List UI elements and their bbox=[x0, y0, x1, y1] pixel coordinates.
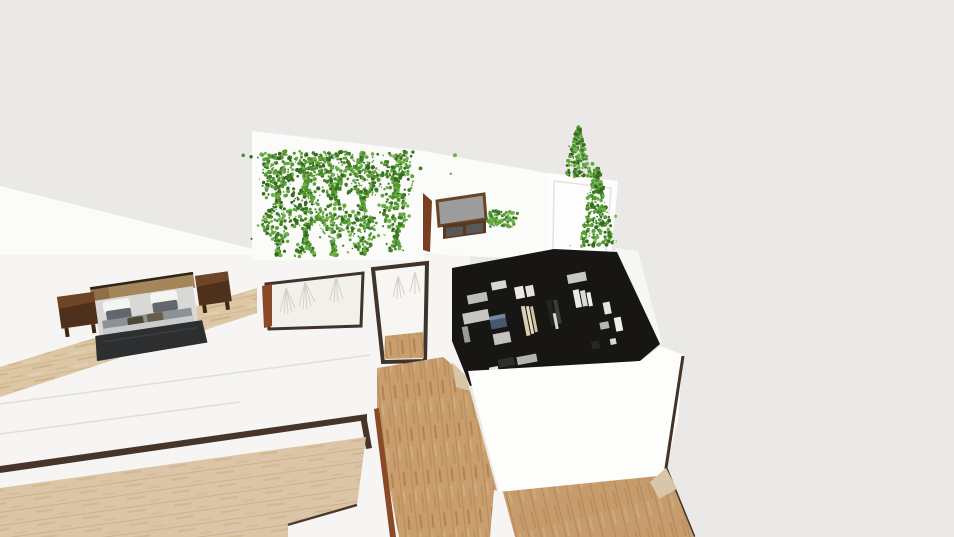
leaf-dot bbox=[369, 215, 371, 217]
leaf-dot bbox=[335, 218, 337, 220]
leaf-dot bbox=[367, 219, 369, 221]
leaf-dot bbox=[587, 228, 590, 231]
leaf-dot bbox=[371, 152, 375, 156]
leaf-dot bbox=[407, 178, 410, 181]
leaf-dot bbox=[387, 225, 391, 229]
leaf-dot bbox=[281, 166, 283, 168]
leaf-dot bbox=[301, 199, 303, 201]
leaf-dot bbox=[280, 217, 283, 220]
leaf-dot bbox=[303, 192, 307, 196]
leaf-dot bbox=[354, 187, 356, 189]
leaf-dot bbox=[321, 173, 325, 177]
leaf-dot bbox=[592, 190, 596, 194]
leaf-dot bbox=[277, 205, 279, 207]
leaf-dot bbox=[412, 183, 413, 184]
leaf-dot bbox=[275, 189, 277, 191]
leaf-dot bbox=[397, 239, 400, 242]
leaf-dot bbox=[289, 211, 292, 214]
leaf-dot bbox=[589, 175, 591, 177]
leaf-dot bbox=[611, 233, 613, 235]
leaf-dot bbox=[593, 212, 595, 214]
leaf-dot bbox=[614, 215, 617, 218]
dark-shelf bbox=[591, 340, 600, 349]
leaf-dot bbox=[358, 184, 360, 186]
leaf-dot bbox=[328, 175, 330, 177]
leaf-dot bbox=[278, 152, 282, 156]
leaf-dot bbox=[598, 190, 601, 193]
leaf-dot bbox=[594, 238, 595, 239]
leaf-dot bbox=[601, 219, 603, 221]
leaf-dot bbox=[354, 173, 358, 177]
leaf-dot bbox=[587, 167, 591, 171]
leaf-dot bbox=[307, 174, 309, 176]
leaf-dot bbox=[304, 233, 306, 235]
leaf-dot bbox=[277, 232, 280, 235]
leaf-dot bbox=[266, 183, 270, 187]
leaf-dot bbox=[319, 225, 320, 226]
leaf-dot bbox=[586, 206, 589, 209]
leaf-dot bbox=[589, 224, 592, 227]
leaf-dot bbox=[573, 165, 575, 167]
leaf-dot bbox=[337, 175, 339, 177]
leaf-dot bbox=[366, 252, 367, 253]
leaf-dot bbox=[566, 164, 569, 167]
leaf-dot bbox=[501, 211, 503, 213]
leaf-dot bbox=[341, 225, 342, 226]
leaf-dot bbox=[304, 246, 308, 250]
leaf-dot bbox=[355, 165, 357, 167]
leaf-dot bbox=[283, 162, 287, 166]
leaf-dot bbox=[406, 205, 409, 208]
leaf-dot bbox=[359, 212, 360, 213]
leaf-dot bbox=[307, 192, 309, 194]
leaf-dot bbox=[283, 207, 286, 210]
leaf-dot bbox=[270, 228, 271, 229]
leaf-dot bbox=[263, 215, 265, 217]
leaf-dot bbox=[276, 241, 277, 242]
leaf-dot bbox=[392, 240, 396, 244]
leaf-dot bbox=[394, 206, 398, 210]
leaf-dot bbox=[406, 203, 408, 205]
leaf-dot bbox=[373, 160, 374, 161]
leaf-dot bbox=[346, 226, 349, 229]
leaf-dot bbox=[573, 150, 575, 152]
leaf-dot bbox=[344, 183, 348, 187]
leaf-dot bbox=[313, 177, 317, 181]
leaf-dot bbox=[349, 238, 352, 241]
leaf-dot bbox=[397, 229, 401, 233]
leaf-dot bbox=[355, 217, 358, 220]
leaf-dot bbox=[369, 189, 371, 191]
leaf-dot bbox=[275, 153, 277, 155]
leaf-dot bbox=[295, 210, 297, 212]
leaf-dot bbox=[305, 188, 309, 192]
leaf-dot bbox=[588, 170, 592, 174]
leaf-dot bbox=[358, 214, 360, 216]
leaf-dot bbox=[355, 182, 357, 184]
leaf-dot bbox=[373, 228, 376, 231]
leaf-dot bbox=[392, 223, 394, 225]
leaf-dot bbox=[326, 205, 330, 209]
leaf-dot bbox=[569, 153, 572, 156]
leaf-dot bbox=[285, 233, 287, 235]
leaf-dot bbox=[327, 194, 331, 198]
leaf-dot bbox=[581, 149, 584, 152]
leaf-dot bbox=[342, 204, 346, 208]
leaf-dot bbox=[373, 217, 376, 220]
leaf-dot bbox=[341, 186, 342, 187]
leaf-dot bbox=[392, 215, 394, 217]
leaf-dot bbox=[339, 227, 340, 228]
render-viewport[interactable] bbox=[0, 0, 954, 537]
leaf-dot bbox=[360, 232, 362, 234]
leaf-dot bbox=[334, 245, 338, 249]
leaf-dot bbox=[315, 174, 317, 176]
leaf-dot bbox=[608, 216, 610, 218]
leaf-dot bbox=[357, 204, 360, 207]
leaf-dot bbox=[383, 155, 384, 156]
leaf-dot bbox=[388, 175, 390, 177]
leaf-dot bbox=[276, 246, 277, 247]
leaf-dot bbox=[353, 235, 354, 236]
leaf-dot bbox=[343, 209, 344, 210]
leaf-dot bbox=[581, 160, 583, 162]
hall-door[interactable] bbox=[373, 263, 427, 362]
leaf-dot bbox=[279, 197, 281, 199]
leaf-dot bbox=[294, 219, 298, 223]
leaf-dot bbox=[577, 127, 579, 129]
leaf-dot bbox=[419, 167, 423, 171]
leaf-dot bbox=[343, 161, 346, 164]
leaf-dot bbox=[578, 135, 582, 139]
leaf-dot bbox=[296, 243, 300, 247]
leaf-dot bbox=[280, 234, 283, 237]
leaf-dot bbox=[326, 190, 329, 193]
leaf-dot bbox=[362, 243, 365, 246]
leaf-dot bbox=[373, 172, 375, 174]
leaf-dot bbox=[306, 210, 309, 213]
leaf-dot bbox=[594, 201, 596, 203]
leaf-dot bbox=[273, 218, 276, 221]
leaf-dot bbox=[298, 192, 301, 195]
leaf-dot bbox=[279, 253, 283, 257]
leaf-dot bbox=[375, 167, 378, 170]
leaf-dot bbox=[341, 173, 345, 177]
leaf-dot bbox=[368, 237, 371, 240]
leaf-dot bbox=[501, 225, 503, 227]
leaf-dot bbox=[381, 186, 382, 187]
leaf-dot bbox=[572, 140, 576, 144]
leaf-dot bbox=[302, 219, 305, 222]
leaf-dot bbox=[292, 163, 294, 165]
leaf-dot bbox=[493, 220, 495, 222]
leaf-dot bbox=[496, 211, 500, 215]
leaf-dot bbox=[366, 241, 369, 244]
leaf-dot bbox=[347, 178, 350, 181]
leaf-dot bbox=[385, 193, 388, 196]
leaf-dot bbox=[311, 203, 314, 206]
leaf-dot bbox=[411, 150, 414, 153]
leaf-dot bbox=[320, 210, 323, 213]
leaf-dot bbox=[359, 175, 362, 178]
leaf-dot bbox=[389, 195, 392, 198]
leaf-dot bbox=[267, 209, 271, 213]
leaf-dot bbox=[319, 195, 321, 197]
leaf-dot bbox=[359, 239, 362, 242]
leaf-dot bbox=[275, 199, 277, 201]
leaf-dot bbox=[362, 204, 363, 205]
leaf-dot bbox=[358, 182, 360, 184]
leaf-dot bbox=[338, 162, 339, 163]
leaf-dot bbox=[334, 238, 335, 239]
leaf-dot bbox=[270, 220, 273, 223]
leaf-dot bbox=[319, 236, 321, 238]
leaf-dot bbox=[410, 187, 412, 189]
leaf-dot bbox=[371, 165, 375, 169]
leaf-dot bbox=[302, 190, 303, 191]
leaf-dot bbox=[294, 179, 295, 180]
leaf-dot bbox=[329, 187, 332, 190]
leaf-dot bbox=[267, 227, 270, 230]
leaf-dot bbox=[322, 186, 324, 188]
leaf-dot bbox=[587, 193, 588, 194]
leaf-dot bbox=[263, 217, 267, 221]
leaf-dot bbox=[582, 165, 584, 167]
leaf-dot bbox=[291, 193, 295, 197]
leaf-dot bbox=[399, 160, 401, 162]
leaf-dot bbox=[489, 214, 491, 216]
leaf-dot bbox=[332, 237, 334, 239]
leaf-dot bbox=[318, 170, 321, 173]
leaf-dot bbox=[356, 167, 360, 171]
leaf-dot bbox=[384, 207, 386, 209]
leaf-dot bbox=[590, 189, 592, 191]
leaf-dot bbox=[404, 174, 406, 176]
leaf-dot bbox=[347, 154, 349, 156]
leaf-dot bbox=[283, 231, 285, 233]
leaf-dot bbox=[611, 241, 614, 244]
leaf-dot bbox=[406, 160, 408, 162]
leaf-dot bbox=[374, 181, 377, 184]
leaf-dot bbox=[408, 164, 411, 167]
potted-plant[interactable] bbox=[484, 209, 519, 228]
leaf-dot bbox=[306, 167, 309, 170]
leaf-dot bbox=[603, 235, 606, 238]
leaf-dot bbox=[332, 183, 333, 184]
leaf-dot bbox=[361, 206, 363, 208]
leaf-dot bbox=[596, 204, 599, 207]
leaf-dot bbox=[584, 224, 586, 226]
leaf-dot bbox=[363, 246, 366, 249]
leaf-dot bbox=[398, 216, 402, 220]
leaf-dot bbox=[507, 214, 509, 216]
leaf-dot bbox=[592, 205, 596, 209]
leaf-dot bbox=[257, 224, 260, 227]
leaf-dot bbox=[272, 186, 274, 188]
leaf-dot bbox=[493, 225, 495, 227]
leaf-dot bbox=[505, 220, 507, 222]
leaf-dot bbox=[303, 175, 306, 178]
leaf-dot bbox=[580, 245, 583, 248]
alcove[interactable] bbox=[262, 273, 363, 329]
leaf-dot bbox=[353, 170, 355, 172]
leaf-dot bbox=[593, 217, 596, 220]
leaf-dot bbox=[576, 163, 577, 164]
leaf-dot bbox=[272, 163, 275, 166]
leaf-dot bbox=[488, 220, 490, 222]
leaf-dot bbox=[342, 245, 344, 247]
leaf-dot bbox=[289, 221, 291, 223]
leaf-dot bbox=[389, 172, 391, 174]
leaf-dot bbox=[331, 247, 333, 249]
leaf-dot bbox=[402, 170, 403, 171]
leaf-dot bbox=[489, 225, 492, 228]
leaf-dot bbox=[349, 234, 352, 237]
leaf-dot bbox=[290, 166, 292, 168]
leaf-dot bbox=[305, 153, 306, 154]
leaf-dot bbox=[359, 193, 361, 195]
leaf-dot bbox=[365, 164, 367, 166]
leaf-dot bbox=[357, 228, 361, 232]
leaf-dot bbox=[361, 202, 363, 204]
leaf-dot bbox=[393, 168, 395, 170]
leaf-dot bbox=[590, 194, 592, 196]
leaf-dot bbox=[403, 222, 404, 223]
leaf-dot bbox=[394, 194, 397, 197]
leaf-dot bbox=[345, 211, 348, 214]
leaf-dot bbox=[597, 225, 599, 227]
leaf-dot bbox=[592, 175, 594, 177]
leaf-dot bbox=[335, 194, 337, 196]
leaf-dot bbox=[399, 201, 400, 202]
leaf-dot bbox=[314, 190, 317, 193]
leaf-dot bbox=[398, 161, 401, 164]
leaf-dot bbox=[300, 173, 302, 175]
leaf-dot bbox=[384, 220, 387, 223]
leaf-dot bbox=[262, 169, 264, 171]
leaf-dot bbox=[296, 175, 299, 178]
leaf-dot bbox=[331, 156, 334, 159]
leaf-dot bbox=[351, 183, 353, 185]
leaf-dot bbox=[390, 177, 394, 181]
leaf-dot bbox=[347, 192, 350, 195]
leaf-dot bbox=[389, 154, 392, 157]
leaf-dot bbox=[365, 215, 368, 218]
leaf-dot bbox=[565, 173, 566, 174]
leaf-dot bbox=[349, 173, 352, 176]
leaf-dot bbox=[321, 162, 323, 164]
leaf-dot bbox=[266, 215, 268, 217]
leaf-dot bbox=[295, 162, 296, 163]
leaf-dot bbox=[266, 180, 268, 182]
scene-canvas[interactable] bbox=[0, 0, 954, 537]
leaf-dot bbox=[347, 222, 351, 226]
leaf-dot bbox=[400, 174, 403, 177]
leaf-dot bbox=[398, 247, 401, 250]
leaf-dot bbox=[294, 158, 296, 160]
leaf-dot bbox=[593, 230, 596, 233]
leaf-dot bbox=[403, 150, 407, 154]
leaf-dot bbox=[293, 152, 296, 155]
leaf-dot bbox=[353, 159, 355, 161]
leaf-dot bbox=[388, 183, 390, 185]
leaf-dot bbox=[313, 219, 317, 223]
leaf-dot bbox=[322, 164, 326, 168]
leaf-dot bbox=[371, 187, 373, 189]
leaf-dot bbox=[249, 155, 252, 158]
leaf-dot bbox=[369, 245, 372, 248]
leaf-dot bbox=[320, 228, 321, 229]
leaf-dot bbox=[304, 156, 306, 158]
leaf-dot bbox=[268, 161, 270, 163]
leaf-dot bbox=[364, 231, 366, 233]
leaf-dot bbox=[265, 196, 268, 199]
leaf-dot bbox=[310, 190, 312, 192]
leaf-dot bbox=[368, 234, 371, 237]
leaf-dot bbox=[512, 216, 515, 219]
leaf-dot bbox=[571, 161, 573, 163]
leaf-dot bbox=[280, 201, 283, 204]
leaf-dot bbox=[356, 225, 357, 226]
leaf-dot bbox=[573, 172, 576, 175]
leaf-dot bbox=[398, 170, 400, 172]
leaf-dot bbox=[354, 161, 355, 162]
leaf-dot bbox=[581, 232, 584, 235]
leaf-dot bbox=[241, 154, 245, 158]
leaf-dot bbox=[359, 219, 362, 222]
leaf-dot bbox=[585, 232, 586, 233]
leaf-dot bbox=[616, 241, 617, 242]
leaf-dot bbox=[602, 220, 604, 222]
leaf-dot bbox=[351, 222, 353, 224]
leaf-dot bbox=[274, 162, 276, 164]
leaf-dot bbox=[327, 213, 329, 215]
leaf-dot bbox=[268, 156, 271, 159]
leaf-dot bbox=[392, 228, 395, 231]
leaf-dot bbox=[300, 153, 303, 156]
leaf-dot bbox=[300, 246, 303, 249]
leaf-dot bbox=[322, 231, 324, 233]
leaf-dot bbox=[265, 231, 269, 235]
leaf-dot bbox=[587, 244, 590, 247]
leaf-dot bbox=[310, 199, 314, 203]
leaf-dot bbox=[579, 132, 582, 135]
leaf-dot bbox=[318, 156, 322, 160]
leaf-dot bbox=[359, 164, 363, 168]
leaf-dot bbox=[306, 215, 307, 216]
leaf-dot bbox=[596, 171, 600, 175]
leaf-dot bbox=[597, 222, 599, 224]
leaf-dot bbox=[273, 237, 275, 239]
leaf-dot bbox=[391, 181, 395, 185]
leaf-dot bbox=[281, 240, 284, 243]
leaf-dot bbox=[285, 183, 287, 185]
leaf-dot bbox=[570, 148, 573, 151]
leaf-dot bbox=[312, 195, 313, 196]
leaf-dot bbox=[568, 161, 569, 162]
leaf-dot bbox=[329, 216, 332, 219]
leaf-dot bbox=[346, 166, 348, 168]
leaf-dot bbox=[331, 240, 334, 243]
leaf-dot bbox=[583, 174, 586, 177]
leaf-dot bbox=[364, 173, 365, 174]
leaf-dot bbox=[328, 164, 330, 166]
leaf-dot bbox=[575, 171, 576, 172]
leaf-dot bbox=[361, 253, 363, 255]
leaf-dot bbox=[293, 204, 294, 205]
leaf-dot bbox=[609, 224, 612, 227]
leaf-dot bbox=[386, 198, 389, 201]
